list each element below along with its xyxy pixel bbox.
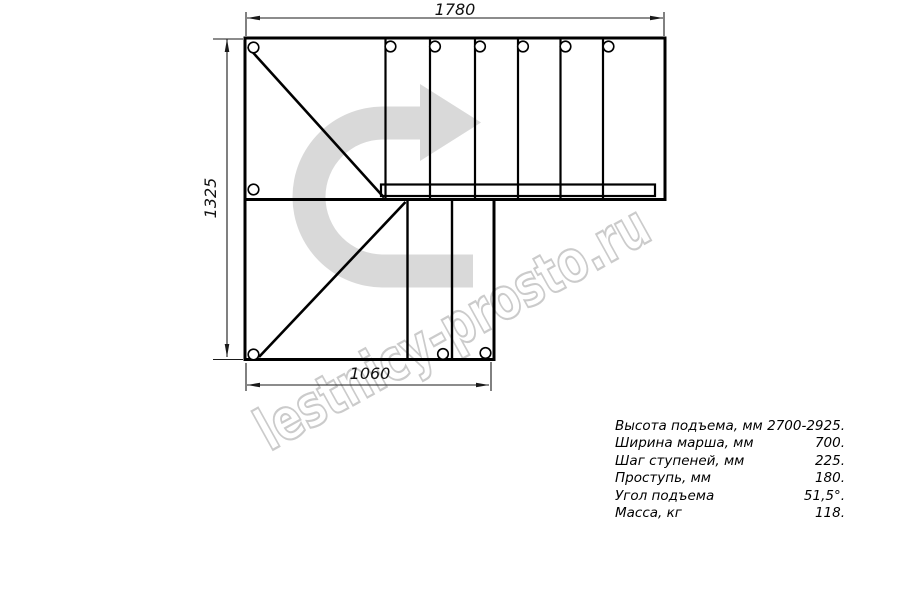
dimension-left-label: 1325: [201, 178, 220, 219]
stair-plan-canvas: lestnicy-prosto.ru: [0, 0, 900, 600]
spec-label: Шаг ступеней, мм: [615, 453, 744, 470]
spec-label: Угол подъема: [615, 488, 714, 505]
spec-row: Проступь, мм 180.: [615, 470, 845, 487]
spec-row: Высота подъема, мм 2700-2925.: [615, 418, 845, 435]
spec-row: Масса, кг 118.: [615, 505, 845, 522]
spec-value: 118.: [815, 505, 845, 522]
spec-row: Шаг ступеней, мм 225.: [615, 453, 845, 470]
spec-row: Угол подъема 51,5°.: [615, 488, 845, 505]
spec-label: Ширина марша, мм: [615, 435, 754, 452]
specs-table: Высота подъема, мм 2700-2925. Ширина мар…: [615, 418, 845, 522]
dimension-top-label: 1780: [435, 0, 476, 19]
spec-value: 700.: [815, 435, 845, 452]
spec-value: 51,5°.: [804, 488, 845, 505]
spec-label: Высота подъема, мм: [615, 418, 763, 435]
spec-value: 225.: [815, 453, 845, 470]
spec-label: Масса, кг: [615, 505, 682, 522]
spec-row: Ширина марша, мм 700.: [615, 435, 845, 452]
spec-value: 2700-2925.: [767, 418, 845, 435]
spec-value: 180.: [815, 470, 845, 487]
dimension-bottom-label: 1060: [350, 364, 391, 383]
spec-label: Проступь, мм: [615, 470, 711, 487]
